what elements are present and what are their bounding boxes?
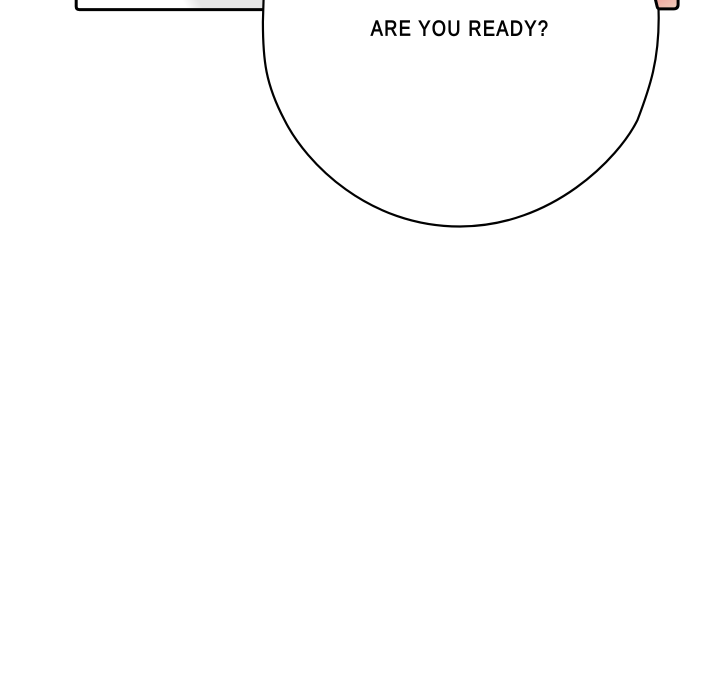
svg-text:ARE YOU READY?: ARE YOU READY? [371,17,550,41]
